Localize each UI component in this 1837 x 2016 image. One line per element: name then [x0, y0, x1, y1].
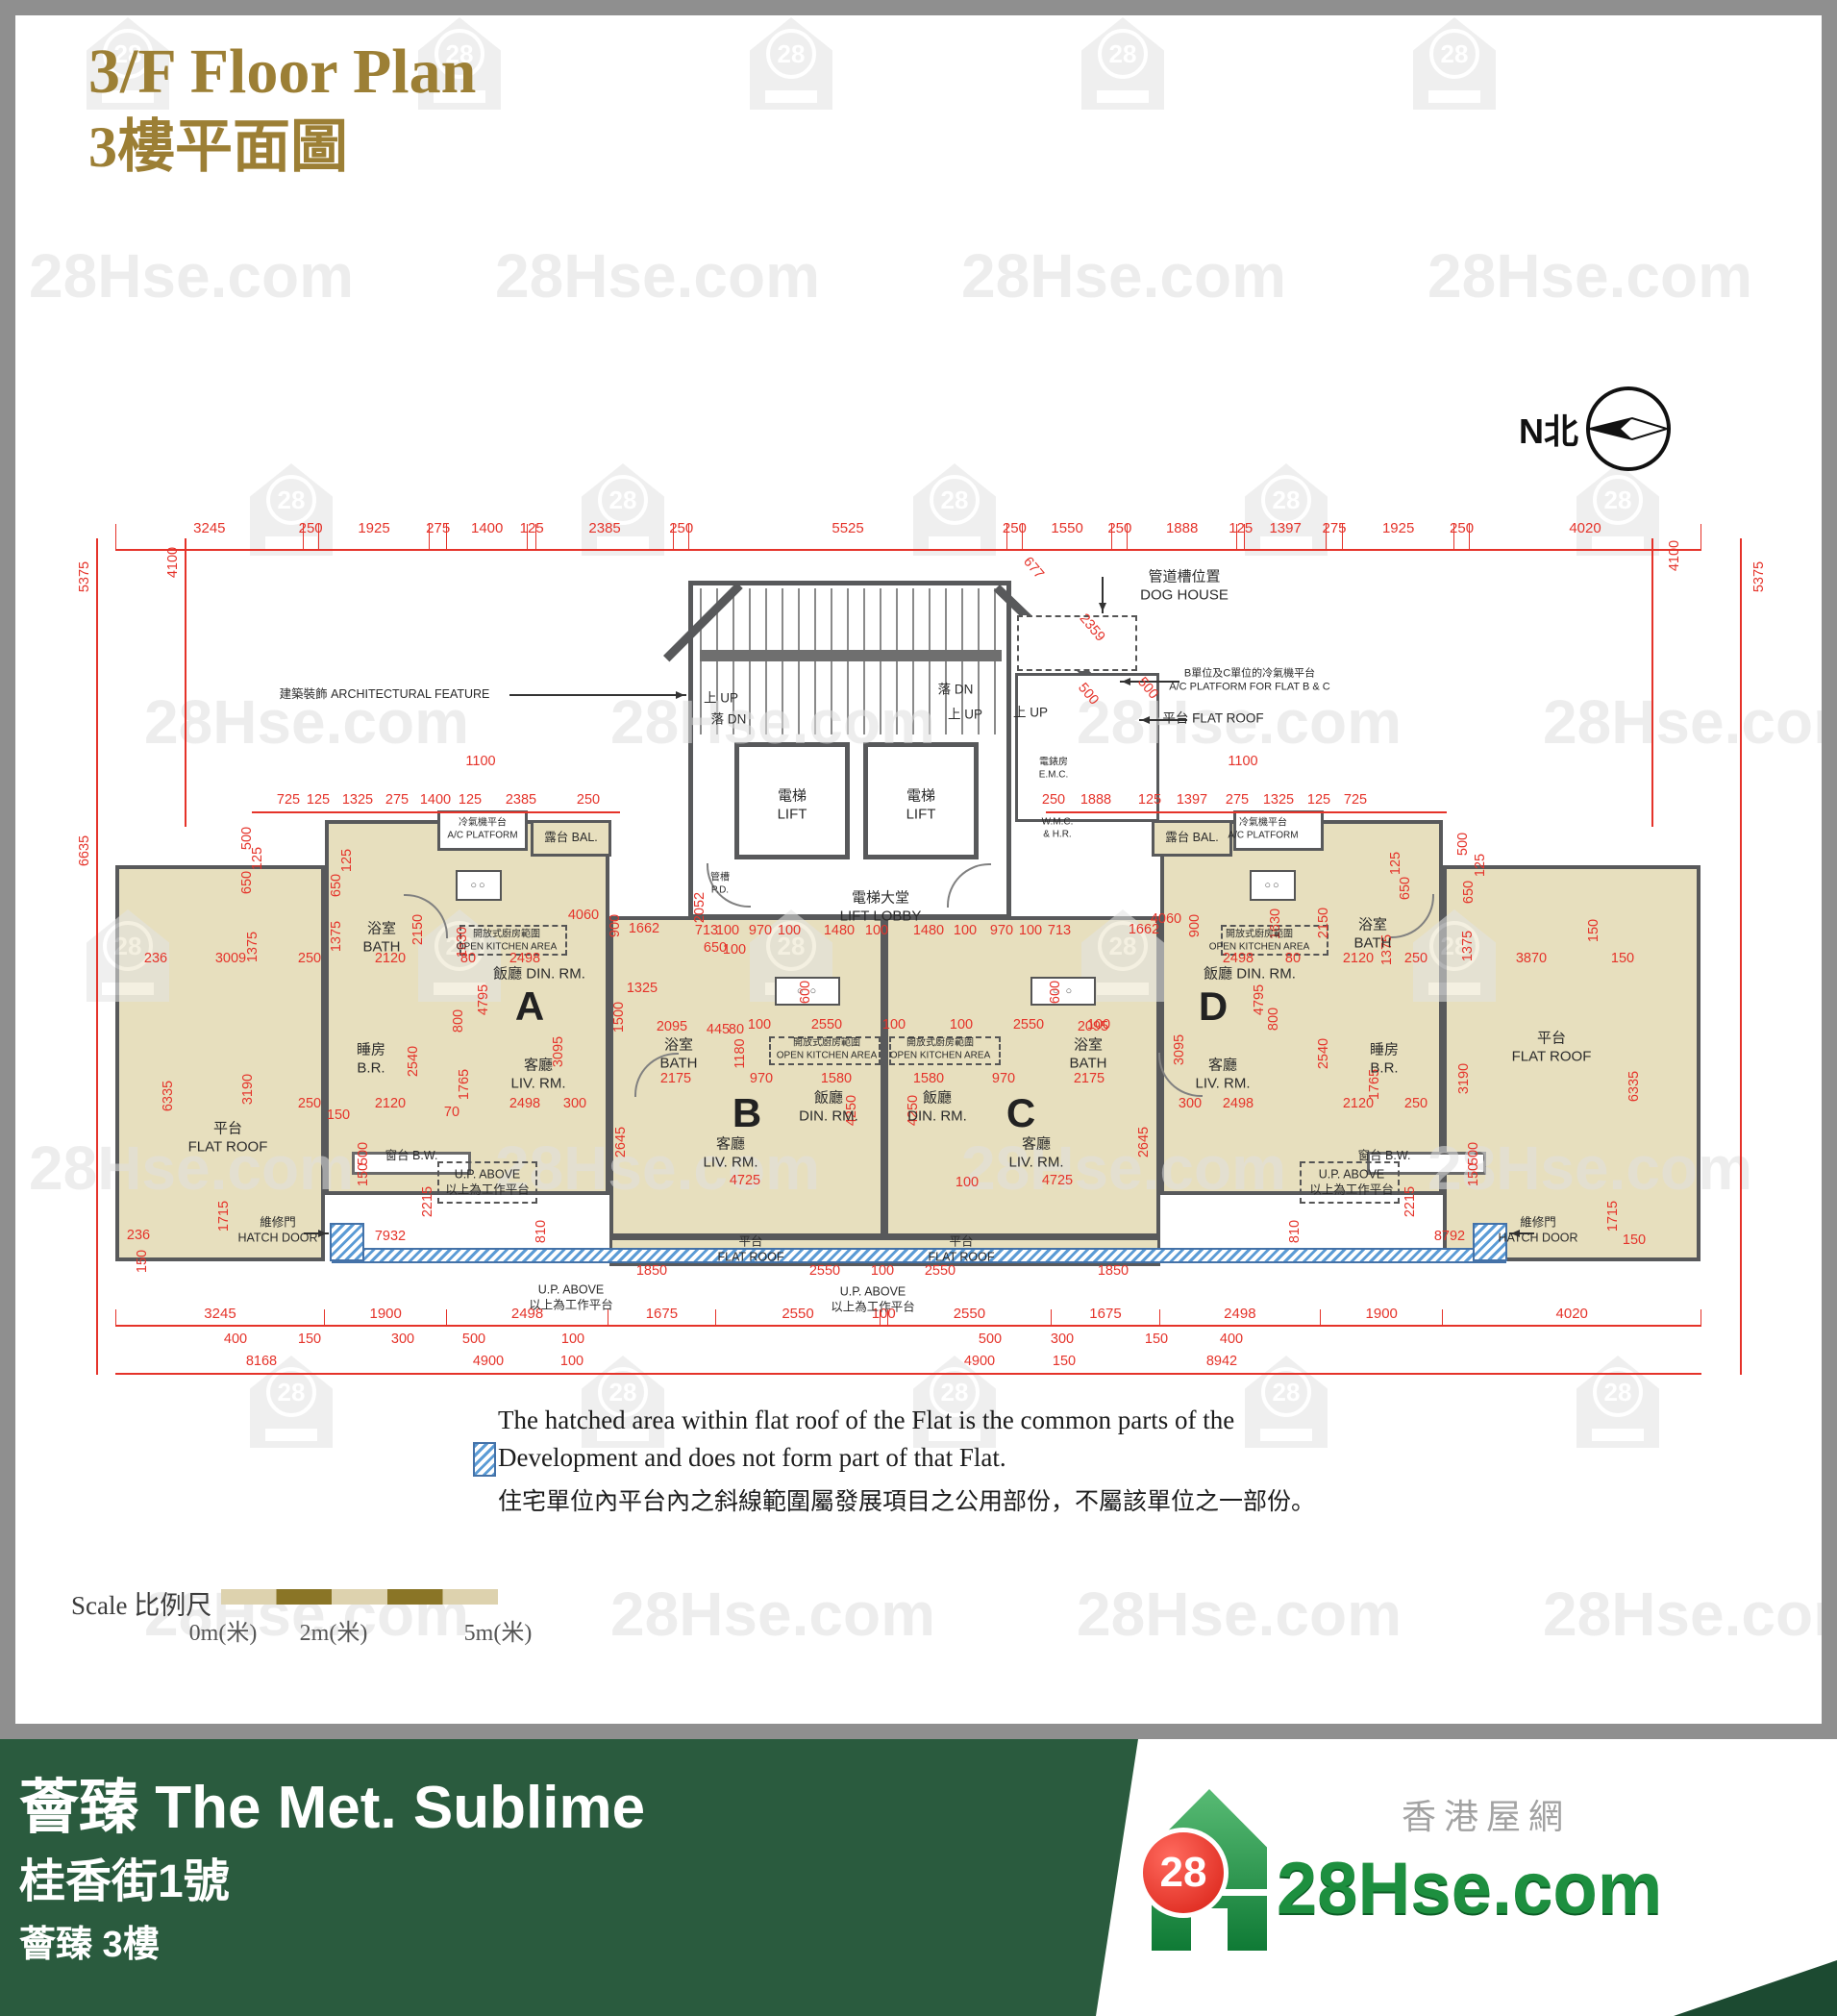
dim-line-right-outer — [1740, 538, 1742, 1375]
room-label: 露台 BAL. — [1165, 831, 1219, 846]
dim-value: 2550 — [1013, 1017, 1044, 1033]
dim-value: 150 — [1466, 1163, 1481, 1186]
dim-value: 1715 — [216, 1201, 232, 1232]
dim-segment: 5525 — [689, 524, 1007, 549]
dim-value: 1715 — [1605, 1201, 1621, 1232]
dim-value: 125 — [339, 849, 355, 872]
28-badge-icon: 28 — [1138, 1828, 1229, 1918]
dim-value: 2095 — [657, 1019, 687, 1034]
room-label: 冷氣機平台 A/C PLATFORM — [1228, 818, 1298, 842]
room-label: D — [1199, 982, 1228, 1033]
scale-5m: 5m(米) — [464, 1613, 533, 1647]
dim-value: 100 — [716, 923, 739, 938]
title-zh: 3樓平面圖 — [88, 118, 476, 176]
room-label: 睡房 B.R. — [357, 1041, 385, 1078]
dim-segment: 1675 — [1052, 1309, 1159, 1325]
dim-value: 650 — [1398, 877, 1413, 900]
dim-value: 125 — [1388, 852, 1403, 875]
dim-value: 275 — [385, 792, 409, 808]
watermark-text: 28Hse.com — [1077, 1579, 1402, 1650]
dim-segment: 1675 — [608, 1309, 716, 1325]
room-label: 平台 FLAT ROOF — [1162, 711, 1263, 728]
dim-value: 677 — [1020, 555, 1047, 583]
dim-value: 1850 — [636, 1263, 667, 1279]
property-address: 桂香街1號 — [19, 1843, 230, 1910]
dim-value: 250 — [1042, 792, 1065, 808]
frame-right — [1822, 0, 1837, 1739]
common-area-hatch-strip — [332, 1248, 1506, 1263]
dim-value: 150 — [1053, 1354, 1076, 1369]
room-label: U.P. ABOVE 以上為工作平台 — [831, 1284, 915, 1314]
room-label: 開放式廚房範圍 OPEN KITCHEN AREA — [890, 1038, 990, 1062]
dim-value: 80 — [729, 1022, 744, 1037]
dim-value: 500 — [1455, 833, 1471, 856]
dim-value: 6635 — [77, 835, 92, 866]
dim-value: 3095 — [1172, 1034, 1187, 1065]
dim-value: 3190 — [240, 1074, 256, 1105]
dim-value: 2215 — [1403, 1186, 1418, 1217]
dim-segment: 3245 — [115, 1309, 325, 1325]
hatch-legend-swatch — [473, 1442, 496, 1477]
room-label: 維修門 HATCH DOOR — [1498, 1215, 1577, 1245]
dim-value: 1100 — [1228, 754, 1257, 769]
room-label: 上 UP — [1013, 706, 1048, 722]
dim-line-left-inner — [185, 538, 186, 827]
dim-value: 275 — [1226, 792, 1249, 808]
dim-value: 70 — [444, 1105, 459, 1120]
dim-value: 150 — [1145, 1332, 1168, 1347]
note-line-3: 住宅單位內平台內之斜線範圍屬發展項目之公用部份，不屬該單位之一部份。 — [498, 1482, 1363, 1517]
room-label: 冷氣機平台 A/C PLATFORM — [447, 818, 517, 842]
dim-row-top: 3245250192527514001252385250552525015502… — [115, 524, 1701, 551]
dim-value: 2550 — [782, 1306, 813, 1322]
dim-value: 1180 — [732, 1038, 748, 1068]
room-label: 電錶房 E.M.C. — [1039, 758, 1069, 782]
room-label: C — [1006, 1088, 1035, 1139]
room-label: W.M.C. & H.R. — [1042, 817, 1074, 841]
dim-value: 500 — [356, 1142, 371, 1165]
room-label: 落 DN — [711, 712, 747, 729]
note-line-1: The hatched area within flat roof of the… — [498, 1402, 1363, 1439]
dim-value: 725 — [1344, 792, 1367, 808]
dim-value: 150 — [1611, 951, 1634, 966]
dim-value: 4020 — [1556, 1306, 1588, 1322]
dim-value: 6335 — [1626, 1071, 1642, 1102]
dim-value: 1925 — [358, 520, 389, 536]
room-label: 上 UP — [704, 691, 738, 708]
notes-block: The hatched area within flat roof of the… — [498, 1402, 1363, 1517]
watermark-house-icon: 28 — [250, 1356, 333, 1448]
dim-value: 150 — [135, 1250, 150, 1273]
dim-value: 400 — [224, 1332, 247, 1347]
dim-segment: 275 — [1327, 524, 1343, 549]
dim-value: 1765 — [457, 1069, 472, 1100]
dim-value: 970 — [749, 923, 772, 938]
dim-value: 4100 — [1667, 540, 1682, 571]
scale-bar — [221, 1589, 498, 1605]
dim-value: 2215 — [420, 1186, 435, 1217]
room-label: 管槽 P.D. — [710, 873, 730, 897]
dim-segment: 4020 — [1443, 1309, 1701, 1325]
dim-segment: 1925 — [1343, 524, 1454, 549]
watermark-text: 28Hse.com — [610, 1579, 935, 1650]
dim-value: 125 — [250, 847, 265, 870]
room-label: 維修門 HATCH DOOR — [237, 1215, 317, 1245]
dim-value: 4725 — [1042, 1173, 1073, 1188]
dim-segment: 3245 — [115, 524, 304, 549]
dim-value: 800 — [1266, 1008, 1281, 1031]
dim-value: 4725 — [730, 1173, 760, 1188]
dim-line-bottom-3 — [115, 1373, 1701, 1375]
room-label: 浴室 BATH — [363, 920, 401, 957]
room-label: 平台 FLAT ROOF — [929, 1234, 995, 1264]
watermark-text: 28Hse.com — [1543, 1579, 1837, 1650]
watermark-house-icon: 28 — [750, 17, 832, 110]
room-label: 浴室 BATH — [1354, 916, 1392, 953]
north-label: N北 — [1519, 404, 1578, 454]
dim-value: 600 — [798, 981, 813, 1004]
dim-value: 150 — [1623, 1232, 1646, 1248]
dim-value: 4060 — [568, 908, 599, 923]
dim-value: 300 — [1179, 1096, 1202, 1111]
dim-value: 2550 — [811, 1017, 842, 1033]
dim-value: 2150 — [410, 914, 426, 945]
dim-value: 100 — [871, 1263, 894, 1279]
dim-segment: 1397 — [1245, 524, 1326, 549]
dim-value: 650 — [1461, 881, 1477, 904]
28hse-logo-text[interactable]: 28Hse.com — [1277, 1847, 1662, 1930]
room-label: A — [515, 982, 544, 1033]
dim-value: 1400 — [471, 520, 503, 536]
dim-value: 1850 — [1098, 1263, 1129, 1279]
dim-value: 2120 — [1343, 951, 1374, 966]
dim-value: 725 — [277, 792, 300, 808]
dim-value: 150 — [356, 1163, 371, 1186]
room-label: 電梯 LIFT — [906, 787, 936, 824]
stove-icon-C: ○ ○ — [1030, 977, 1096, 1006]
dim-value: 300 — [391, 1332, 414, 1347]
dim-value: 1500 — [611, 1002, 627, 1033]
room-label: 建築裝飾 ARCHITECTURAL FEATURE — [280, 687, 490, 703]
dim-value: 2540 — [406, 1046, 421, 1077]
corner-triangle — [1674, 1960, 1837, 2016]
dim-value: 250 — [298, 951, 321, 966]
room-label: 上 UP — [948, 708, 982, 724]
dim-value: 4900 — [473, 1354, 504, 1369]
dim-value: 400 — [1220, 1332, 1243, 1347]
room-label: 開放式廚房範圍 OPEN KITCHEN AREA — [1209, 930, 1309, 954]
room-label: 電梯 LIFT — [778, 787, 807, 824]
dim-value: 2095 — [1078, 1019, 1108, 1034]
dim-segment: 1550 — [1023, 524, 1113, 549]
dim-value: 1675 — [646, 1306, 678, 1322]
room-label: 窗台 B.W. — [1358, 1149, 1411, 1164]
dim-value: 250 — [298, 1096, 321, 1111]
dim-value: 900 — [1187, 914, 1203, 937]
dim-value: 650 — [329, 874, 344, 897]
dim-value: 236 — [144, 951, 167, 966]
room-label: 客廳 LIV. RM. — [1009, 1135, 1064, 1172]
dim-value: 125 — [459, 792, 482, 808]
dim-value: 2498 — [509, 1096, 540, 1111]
dim-value: 2645 — [613, 1127, 629, 1157]
dim-value: 125 — [1307, 792, 1330, 808]
dim-value: 4900 — [964, 1354, 995, 1369]
property-name: 薈臻 The Met. Sublime — [19, 1758, 645, 1845]
dim-value: 125 — [1473, 854, 1488, 877]
title-en: 3/F Floor Plan — [88, 38, 476, 105]
dim-value: 100 — [560, 1354, 583, 1369]
dim-value: 100 — [882, 1017, 906, 1033]
dim-value: 8168 — [246, 1354, 277, 1369]
dim-value: 3009 — [215, 951, 246, 966]
room-label: 管道槽位置 DOG HOUSE — [1140, 568, 1229, 605]
dim-segment: 125 — [1237, 524, 1245, 549]
dim-value: 100 — [956, 1175, 979, 1190]
dim-value: 8942 — [1206, 1354, 1237, 1369]
dim-value: 810 — [534, 1220, 549, 1243]
room-label: 露台 BAL. — [544, 831, 598, 846]
dim-value: 250 — [577, 792, 600, 808]
dim-segment: 250 — [674, 524, 689, 549]
hatch-door-left — [330, 1223, 364, 1261]
logo-panel: 28 28Hse.com 香港屋網 — [1096, 1739, 1837, 2016]
dim-value: 970 — [750, 1071, 773, 1086]
dim-segment: 250 — [1112, 524, 1128, 549]
room-label: 客廳 LIV. RM. — [704, 1135, 758, 1172]
dim-value: 1400 — [420, 792, 451, 808]
dim-value: 1900 — [370, 1306, 402, 1322]
dim-value: 2498 — [1223, 1096, 1254, 1111]
frame-left — [0, 0, 15, 1739]
dim-segment: 275 — [430, 524, 446, 549]
dim-value: 2550 — [925, 1263, 956, 1279]
watermark-text: 28Hse.com — [29, 240, 354, 311]
dim-value: 1325 — [1263, 792, 1294, 808]
dim-value: 8792 — [1434, 1229, 1465, 1244]
dim-value: 713 — [1048, 923, 1071, 938]
dim-value: 2120 — [1343, 1096, 1374, 1111]
dim-value: 150 — [327, 1108, 350, 1123]
dim-value: 1580 — [821, 1071, 852, 1086]
dim-segment: 1900 — [325, 1309, 447, 1325]
frame-top — [0, 0, 1837, 15]
dim-value: 970 — [992, 1071, 1015, 1086]
dim-value: 4020 — [1569, 520, 1601, 536]
room-label: U.P. ABOVE 以上為工作平台 — [529, 1282, 613, 1312]
room-label: 平台 FLAT ROOF — [1512, 1030, 1592, 1066]
dim-value: 1580 — [913, 1071, 944, 1086]
room-label: 開放式廚房範圍 OPEN KITCHEN AREA — [457, 930, 557, 954]
dim-value: 3870 — [1516, 951, 1547, 966]
dim-value: 2550 — [954, 1306, 985, 1322]
dim-value: 2175 — [660, 1071, 691, 1086]
dog-house-box — [1017, 615, 1137, 671]
dim-value: 2175 — [1074, 1071, 1105, 1086]
room-label: B — [732, 1088, 761, 1139]
north-compass: N北 — [1519, 385, 1673, 473]
dim-value: 250 — [1404, 1096, 1427, 1111]
dim-value: 1925 — [1382, 520, 1414, 536]
staircase-landing — [700, 650, 1002, 661]
dim-value: 1662 — [1129, 922, 1159, 937]
dim-value: 150 — [1586, 919, 1601, 942]
dim-segment: 1400 — [447, 524, 529, 549]
dim-value: 1397 — [1269, 520, 1301, 536]
room-label: U.P. ABOVE 以上為工作平台 — [445, 1167, 530, 1197]
dim-segment: 1888 — [1128, 524, 1237, 549]
dim-value: 2498 — [1224, 1306, 1255, 1322]
dim-value: 800 — [451, 1009, 466, 1033]
dim-value: 810 — [1287, 1220, 1303, 1243]
dim-value: 970 — [990, 923, 1013, 938]
room-label: 浴室 BATH — [1070, 1036, 1107, 1073]
dim-value: 1100 — [465, 754, 495, 769]
room-label: 客廳 LIV. RM. — [511, 1057, 566, 1093]
dim-line-right-inner — [1651, 538, 1653, 827]
dim-value: 900 — [608, 914, 623, 937]
watermark-text: 28Hse.com — [1543, 686, 1837, 758]
dim-value: 100 — [950, 1017, 973, 1033]
dim-value: 445 — [707, 1022, 730, 1037]
room-label: U.P. ABOVE 以上為工作平台 — [1309, 1167, 1394, 1197]
dim-segment: 250 — [1454, 524, 1470, 549]
dim-value: 2540 — [1316, 1038, 1331, 1069]
dim-segment: 125 — [528, 524, 535, 549]
watermark-house-icon: 28 — [1576, 1356, 1659, 1448]
dim-value: 1375 — [1460, 931, 1476, 961]
room-label: 電梯大堂 LIFT LOBBY — [840, 889, 922, 926]
dim-segment: 1925 — [319, 524, 431, 549]
dim-value: 1888 — [1166, 520, 1198, 536]
dim-value: 100 — [748, 1017, 771, 1033]
stove-icon-D: ○○ — [1250, 870, 1296, 901]
watermark-text: 28Hse.com — [961, 240, 1286, 311]
dim-value: 1325 — [342, 792, 373, 808]
dim-value: 125 — [1138, 792, 1161, 808]
dog-house-arrow — [1102, 577, 1104, 613]
dim-line-left-outer — [96, 538, 98, 1375]
dim-value: 1675 — [1089, 1306, 1121, 1322]
dim-value: 5375 — [1751, 561, 1767, 592]
room-label: 落 DN — [938, 683, 974, 699]
room-label: 睡房 B.R. — [1370, 1041, 1399, 1078]
dim-segment: 1900 — [1321, 1309, 1443, 1325]
dim-line-upper-right — [1046, 811, 1447, 813]
floorplan-page: 3/F Floor Plan 3樓平面圖 N北 282828282828Hse.… — [0, 0, 1837, 2016]
dim-value: 100 — [1019, 923, 1042, 938]
dim-value: 1375 — [329, 921, 344, 952]
dim-value: 500 — [1466, 1142, 1481, 1165]
dim-value: 2052 — [692, 892, 707, 923]
dim-value: 4795 — [1252, 984, 1267, 1015]
dim-value: 1662 — [629, 921, 659, 936]
watermark-text: 28Hse.com — [495, 240, 820, 311]
dim-value: 300 — [563, 1096, 586, 1111]
dim-value: 2385 — [506, 792, 536, 808]
dim-value: 4100 — [165, 547, 181, 578]
dim-value: 1325 — [627, 981, 658, 996]
dim-value: 300 — [1051, 1332, 1074, 1347]
scale-0m: 0m(米) — [189, 1613, 258, 1647]
dim-value: 713 — [695, 923, 718, 938]
dim-value: 250 — [1404, 951, 1427, 966]
stove-icon-A: ○○ — [456, 870, 502, 901]
dim-segment: 250 — [304, 524, 319, 549]
room-label: 飯廳 DIN. RM. — [907, 1089, 967, 1126]
dim-value: 150 — [298, 1332, 321, 1347]
dim-value: 3245 — [193, 520, 225, 536]
dim-value: 100 — [723, 942, 746, 958]
arch-feature-arrow — [509, 694, 686, 696]
watermark-house-icon: 28 — [1081, 17, 1164, 110]
note-line-2: Development and does not form part of th… — [498, 1439, 1363, 1477]
dim-value: 7932 — [375, 1229, 406, 1244]
room-label: 窗台 B.W. — [385, 1149, 438, 1164]
dim-segment: 2498 — [1160, 1309, 1321, 1325]
dim-value: 236 — [127, 1228, 150, 1243]
dim-value: 2120 — [375, 1096, 406, 1111]
dim-value: 500 — [979, 1332, 1002, 1347]
dim-value: 2550 — [809, 1263, 840, 1279]
dim-value: 5525 — [832, 520, 863, 536]
dim-value: 100 — [561, 1332, 584, 1347]
room-label: B單位及C單位的冷氣機平台 A/C PLATFORM FOR FLAT B & … — [1169, 667, 1329, 694]
dim-value: 1888 — [1080, 792, 1111, 808]
room-label: 客廳 LIV. RM. — [1196, 1057, 1251, 1093]
dim-value: 500 — [462, 1332, 485, 1347]
dim-value: 1900 — [1366, 1306, 1398, 1322]
dim-value: 4795 — [476, 984, 491, 1015]
dim-value: 1375 — [245, 932, 261, 962]
dim-value: 3245 — [204, 1306, 236, 1322]
room-label: 開放式廚房範圍 OPEN KITCHEN AREA — [777, 1038, 877, 1062]
dim-value: 5375 — [77, 561, 92, 592]
dim-value: 3190 — [1456, 1063, 1472, 1094]
dim-line-upper-left — [252, 811, 620, 813]
dim-value: 650 — [239, 871, 255, 894]
dim-value: 1397 — [1177, 792, 1207, 808]
room-label: 飯廳 DIN. RM. — [799, 1089, 858, 1126]
property-floor: 薈臻 3樓 — [19, 1914, 160, 1967]
site-chinese-name: 香港屋網 — [1402, 1789, 1571, 1839]
dim-value: 2150 — [1316, 908, 1331, 938]
dim-value: 2385 — [588, 520, 620, 536]
dim-value: 100 — [954, 923, 977, 938]
dim-value: 1550 — [1051, 520, 1082, 536]
room-label: 浴室 BATH — [660, 1036, 698, 1073]
compass-icon — [1584, 385, 1673, 473]
dim-segment: 2385 — [536, 524, 674, 549]
watermark-house-icon: 28 — [1413, 17, 1496, 110]
dim-value: 100 — [778, 923, 801, 938]
dim-value: 2645 — [1136, 1127, 1152, 1157]
dim-value: 600 — [1048, 981, 1063, 1004]
dim-value: 6335 — [161, 1081, 176, 1111]
page-title: 3/F Floor Plan 3樓平面圖 — [88, 38, 476, 176]
scale-2m: 2m(米) — [300, 1613, 368, 1647]
watermark-text: 28Hse.com — [1427, 240, 1752, 311]
room-label: 平台 FLAT ROOF — [188, 1120, 268, 1157]
frame-bottom — [0, 1724, 1837, 1739]
dim-segment: 250 — [1007, 524, 1023, 549]
dim-value: 125 — [307, 792, 330, 808]
room-label: 平台 FLAT ROOF — [718, 1234, 784, 1264]
